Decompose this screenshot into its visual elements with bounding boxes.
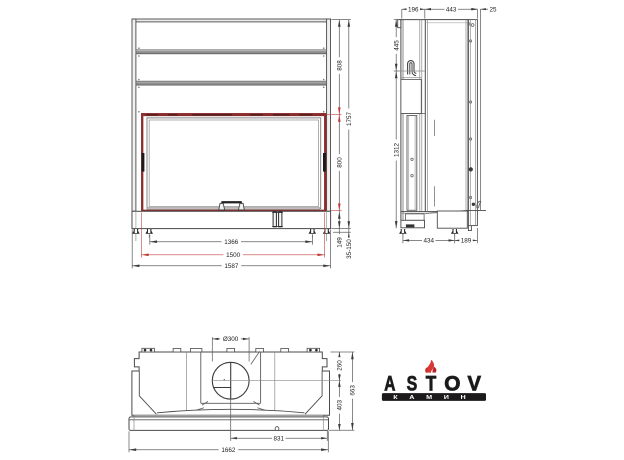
svg-text:1662: 1662 bbox=[221, 447, 236, 454]
svg-text:403: 403 bbox=[337, 400, 344, 411]
svg-text:260: 260 bbox=[337, 360, 344, 371]
svg-text:663: 663 bbox=[350, 385, 357, 396]
svg-text:1366: 1366 bbox=[224, 239, 239, 246]
svg-text:443: 443 bbox=[446, 7, 457, 14]
svg-text:1312: 1312 bbox=[394, 143, 401, 158]
svg-text:S: S bbox=[407, 372, 418, 396]
svg-text:КАМИН: КАМИН bbox=[393, 395, 477, 401]
svg-text:35-150: 35-150 bbox=[346, 239, 353, 259]
svg-text:O: O bbox=[444, 372, 460, 395]
svg-text:196: 196 bbox=[408, 7, 419, 14]
svg-text:149: 149 bbox=[337, 237, 344, 248]
svg-text:25: 25 bbox=[490, 7, 498, 14]
svg-text:189: 189 bbox=[461, 238, 472, 245]
svg-text:808: 808 bbox=[337, 60, 344, 71]
svg-text:1757: 1757 bbox=[346, 112, 353, 127]
svg-text:Ø300: Ø300 bbox=[223, 336, 239, 343]
svg-text:1500: 1500 bbox=[226, 252, 241, 259]
svg-text:800: 800 bbox=[337, 157, 344, 168]
svg-text:445: 445 bbox=[394, 40, 401, 51]
svg-text:1587: 1587 bbox=[224, 263, 239, 270]
svg-text:A: A bbox=[384, 371, 396, 395]
svg-text:T: T bbox=[426, 372, 437, 396]
svg-text:434: 434 bbox=[424, 238, 435, 245]
svg-text:V: V bbox=[468, 372, 482, 396]
svg-text:831: 831 bbox=[274, 436, 285, 443]
